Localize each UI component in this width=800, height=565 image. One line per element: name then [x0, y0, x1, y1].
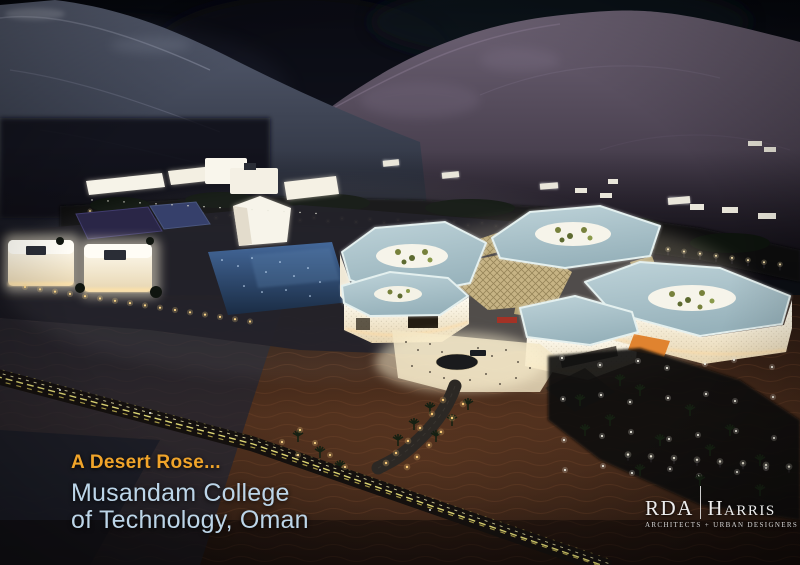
caption: A Desert Rose... Musandam College of Tec… [71, 452, 309, 534]
firm-logo-right: Harris [707, 498, 775, 519]
firm-logo-left: RDA [645, 498, 694, 519]
firm-logo-divider [700, 486, 702, 519]
caption-title-line2: of Technology, Oman [71, 507, 309, 534]
firm-logo-subtitle: ARCHITECTS + URBAN DESIGNERS [645, 521, 798, 529]
firm-logo-names: RDA Harris [645, 486, 798, 519]
caption-title-line1: Musandam College [71, 480, 309, 507]
caption-tagline: A Desert Rose... [71, 452, 309, 474]
caption-title: Musandam College of Technology, Oman [71, 480, 309, 534]
firm-logo: RDA Harris ARCHITECTS + URBAN DESIGNERS [645, 486, 798, 529]
rendering-slide: A Desert Rose... Musandam College of Tec… [0, 0, 800, 565]
